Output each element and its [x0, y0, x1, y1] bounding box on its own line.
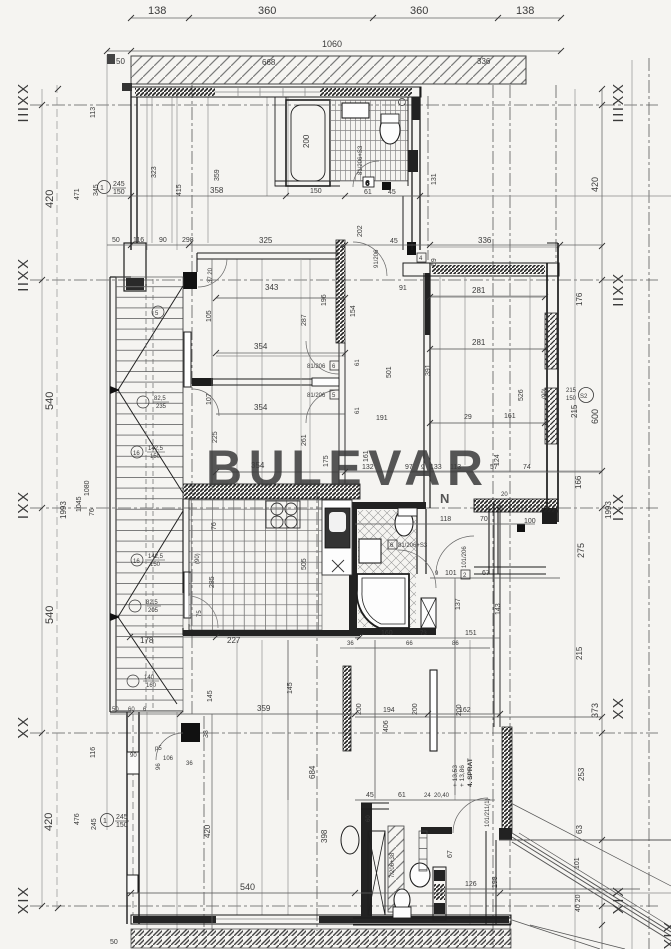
svg-text:101: 101 — [445, 570, 457, 577]
svg-text:(90): (90) — [542, 388, 548, 399]
svg-text:61: 61 — [355, 359, 361, 366]
svg-text:150: 150 — [116, 822, 128, 829]
svg-text:235: 235 — [156, 404, 167, 410]
svg-text:105: 105 — [206, 310, 213, 322]
svg-text:526: 526 — [518, 389, 525, 401]
svg-text:373: 373 — [590, 703, 600, 718]
svg-text:XX: XX — [609, 698, 626, 721]
svg-text:60: 60 — [366, 815, 372, 822]
svg-text:354: 354 — [254, 342, 268, 351]
svg-text:1: 1 — [100, 185, 104, 192]
svg-text:200: 200 — [412, 703, 419, 715]
svg-text:40 20: 40 20 — [575, 894, 582, 912]
svg-text:1993: 1993 — [59, 501, 68, 519]
svg-text:61: 61 — [398, 792, 406, 799]
svg-text:600: 600 — [590, 409, 600, 424]
svg-text:1: 1 — [103, 818, 107, 825]
svg-text:166: 166 — [574, 475, 583, 489]
svg-text:345: 345 — [93, 184, 100, 196]
svg-text:63: 63 — [575, 825, 584, 834]
svg-text:1060: 1060 — [322, 39, 342, 49]
svg-text:200: 200 — [302, 134, 311, 148]
svg-text:245: 245 — [113, 181, 125, 188]
svg-text:61: 61 — [355, 407, 361, 414]
svg-text:150: 150 — [113, 189, 125, 196]
svg-text:45: 45 — [366, 792, 374, 799]
svg-text:6: 6 — [332, 364, 336, 370]
svg-text:S2: S2 — [580, 394, 588, 400]
svg-text:50: 50 — [112, 237, 120, 244]
svg-text:91/206: 91/206 — [374, 249, 380, 268]
svg-text:76: 76 — [211, 522, 218, 530]
svg-text:137: 137 — [455, 598, 462, 610]
svg-text:142,5: 142,5 — [148, 554, 164, 560]
svg-text:75: 75 — [197, 610, 203, 617]
svg-text:420: 420 — [590, 177, 600, 192]
svg-text:BULEVAR: BULEVAR — [206, 440, 489, 496]
svg-text:343: 343 — [265, 283, 279, 292]
svg-text:67: 67 — [447, 850, 454, 858]
svg-text:160: 160 — [146, 683, 157, 689]
svg-text:476: 476 — [74, 813, 81, 825]
svg-text:XXIII: XXIII — [14, 84, 31, 124]
svg-text:325: 325 — [259, 236, 273, 245]
svg-text:20,40: 20,40 — [434, 793, 450, 799]
svg-text:398: 398 — [320, 829, 329, 843]
svg-text:45: 45 — [388, 189, 396, 196]
svg-text:154: 154 — [350, 305, 357, 317]
svg-text:298: 298 — [182, 237, 194, 244]
svg-text:150: 150 — [566, 396, 577, 402]
svg-text:359: 359 — [214, 169, 221, 181]
svg-text:205: 205 — [148, 608, 159, 614]
svg-text:36: 36 — [186, 761, 193, 767]
svg-text:9: 9 — [435, 571, 439, 577]
svg-text:360: 360 — [410, 5, 428, 17]
svg-text:16: 16 — [133, 451, 140, 457]
svg-text:336: 336 — [477, 57, 491, 66]
svg-text:194: 194 — [383, 707, 395, 714]
svg-text:50: 50 — [112, 707, 119, 713]
svg-text:36: 36 — [347, 641, 354, 647]
svg-text:198: 198 — [492, 876, 499, 888]
svg-text:4. SPRAT: 4. SPRAT — [467, 758, 474, 787]
svg-text:420: 420 — [203, 824, 212, 838]
svg-text:124: 124 — [494, 454, 501, 466]
svg-text:359: 359 — [257, 704, 271, 713]
svg-text:59: 59 — [431, 258, 438, 266]
svg-text:37 20: 37 20 — [208, 267, 214, 283]
svg-text:107: 107 — [206, 393, 213, 405]
svg-text:215: 215 — [575, 646, 584, 660]
svg-text:XIX: XIX — [14, 887, 31, 916]
svg-text:81/206+S3: 81/206+S3 — [358, 145, 364, 175]
svg-text:91: 91 — [399, 285, 407, 292]
svg-text:24: 24 — [424, 793, 431, 799]
svg-text:XXII: XXII — [609, 274, 626, 308]
svg-text:275: 275 — [576, 543, 586, 558]
svg-text:(90): (90) — [195, 553, 201, 564]
svg-text:82,5: 82,5 — [146, 600, 158, 606]
svg-text:202: 202 — [357, 225, 364, 237]
svg-text:281: 281 — [472, 286, 486, 295]
svg-text:60: 60 — [128, 707, 135, 713]
svg-text:1993: 1993 — [604, 501, 613, 519]
svg-text:142,5: 142,5 — [148, 446, 164, 452]
svg-text:101: 101 — [574, 857, 581, 869]
svg-text:100: 100 — [524, 518, 536, 525]
svg-text:p5: p5 — [155, 746, 162, 752]
svg-text:101/211(1): 101/211(1) — [485, 798, 491, 827]
svg-text:101/206: 101/206 — [462, 546, 468, 568]
svg-text:140: 140 — [144, 675, 155, 681]
svg-text:81/206: 81/206 — [307, 393, 326, 399]
svg-text:150: 150 — [150, 562, 161, 568]
svg-text:505: 505 — [301, 558, 308, 570]
svg-text:471: 471 — [74, 188, 81, 200]
svg-text:6: 6 — [366, 181, 370, 188]
svg-text:90: 90 — [130, 753, 137, 759]
svg-text:143: 143 — [495, 603, 502, 615]
svg-text:+ 13,86: + 13,86 — [459, 765, 466, 787]
svg-text:160: 160 — [381, 630, 393, 637]
svg-text:XXIII: XXIII — [609, 84, 626, 124]
svg-text:336: 336 — [478, 236, 492, 245]
svg-text:150: 150 — [150, 454, 161, 460]
svg-text:1080: 1080 — [84, 480, 91, 496]
svg-text:67: 67 — [482, 570, 490, 577]
svg-text:7/206+38: 7/206+38 — [390, 852, 396, 878]
svg-text:82,5: 82,5 — [154, 396, 166, 402]
svg-text:81/206+S3: 81/206+S3 — [398, 543, 428, 549]
svg-text:196: 196 — [321, 294, 328, 306]
svg-text:N: N — [440, 491, 449, 506]
svg-text:70: 70 — [480, 516, 488, 523]
svg-text:61: 61 — [364, 189, 372, 196]
svg-text:45: 45 — [390, 238, 398, 245]
svg-text:81/206: 81/206 — [307, 364, 326, 370]
svg-text:245: 245 — [91, 818, 98, 830]
svg-text:116: 116 — [133, 237, 144, 244]
svg-text:106: 106 — [163, 756, 174, 762]
svg-text:191: 191 — [376, 415, 388, 422]
svg-text:684: 684 — [308, 765, 317, 779]
svg-text:4: 4 — [419, 256, 423, 262]
svg-text:668: 668 — [262, 58, 276, 67]
svg-text:50: 50 — [116, 57, 125, 66]
svg-text:200: 200 — [456, 704, 463, 716]
svg-text:540: 540 — [240, 882, 255, 892]
svg-text:227: 227 — [227, 636, 241, 645]
svg-text:406: 406 — [383, 720, 390, 732]
svg-text:391: 391 — [425, 364, 432, 376]
svg-text:96: 96 — [156, 763, 162, 770]
svg-text:5: 5 — [332, 393, 336, 399]
svg-text:126: 126 — [465, 881, 477, 888]
svg-text:XIX: XIX — [609, 887, 626, 916]
svg-text:145: 145 — [287, 682, 294, 694]
svg-text:131: 131 — [431, 173, 438, 185]
svg-text:+ 13,53: + 13,53 — [452, 765, 459, 787]
svg-text:501: 501 — [386, 366, 393, 378]
svg-text:86: 86 — [452, 641, 459, 647]
svg-text:358: 358 — [210, 186, 224, 195]
svg-text:540: 540 — [44, 392, 56, 410]
svg-text:29: 29 — [464, 414, 472, 421]
svg-text:XX: XX — [14, 717, 31, 740]
svg-text:73: 73 — [420, 631, 427, 637]
svg-text:XXI: XXI — [14, 492, 31, 521]
svg-text:113: 113 — [90, 107, 97, 118]
svg-text:74: 74 — [523, 464, 531, 471]
svg-text:215: 215 — [570, 404, 579, 418]
svg-text:285: 285 — [209, 576, 216, 588]
svg-text:118: 118 — [440, 516, 451, 523]
svg-text:540: 540 — [44, 606, 56, 624]
svg-text:161: 161 — [504, 413, 516, 420]
svg-text:415: 415 — [176, 184, 183, 196]
svg-text:287: 287 — [301, 314, 308, 326]
svg-text:323: 323 — [151, 166, 158, 178]
svg-text:354: 354 — [254, 403, 268, 412]
svg-text:1045: 1045 — [76, 496, 83, 512]
svg-text:116: 116 — [90, 747, 97, 758]
svg-text:50: 50 — [110, 939, 118, 946]
svg-text:138: 138 — [516, 5, 534, 17]
svg-text:420: 420 — [43, 813, 55, 831]
svg-text:281: 281 — [472, 338, 486, 347]
svg-text:90: 90 — [159, 237, 167, 244]
svg-text:20: 20 — [501, 492, 508, 498]
svg-text:16: 16 — [133, 559, 140, 565]
svg-text:138: 138 — [148, 5, 166, 17]
svg-text:200: 200 — [356, 703, 363, 715]
svg-text:XXII: XXII — [14, 259, 31, 293]
svg-text:145: 145 — [207, 690, 214, 702]
svg-text:245: 245 — [116, 814, 128, 821]
svg-text:215: 215 — [566, 388, 577, 394]
svg-text:420: 420 — [44, 190, 56, 208]
svg-text:176: 176 — [575, 292, 584, 306]
svg-text:151: 151 — [465, 630, 477, 637]
svg-text:253: 253 — [577, 767, 586, 781]
svg-text:150: 150 — [310, 188, 322, 195]
svg-text:XIX: XIX — [660, 922, 671, 949]
svg-text:360: 360 — [258, 5, 276, 17]
svg-text:66: 66 — [406, 641, 413, 647]
svg-text:76: 76 — [89, 508, 96, 516]
svg-text:178: 178 — [140, 636, 154, 645]
svg-text:38: 38 — [203, 730, 210, 738]
